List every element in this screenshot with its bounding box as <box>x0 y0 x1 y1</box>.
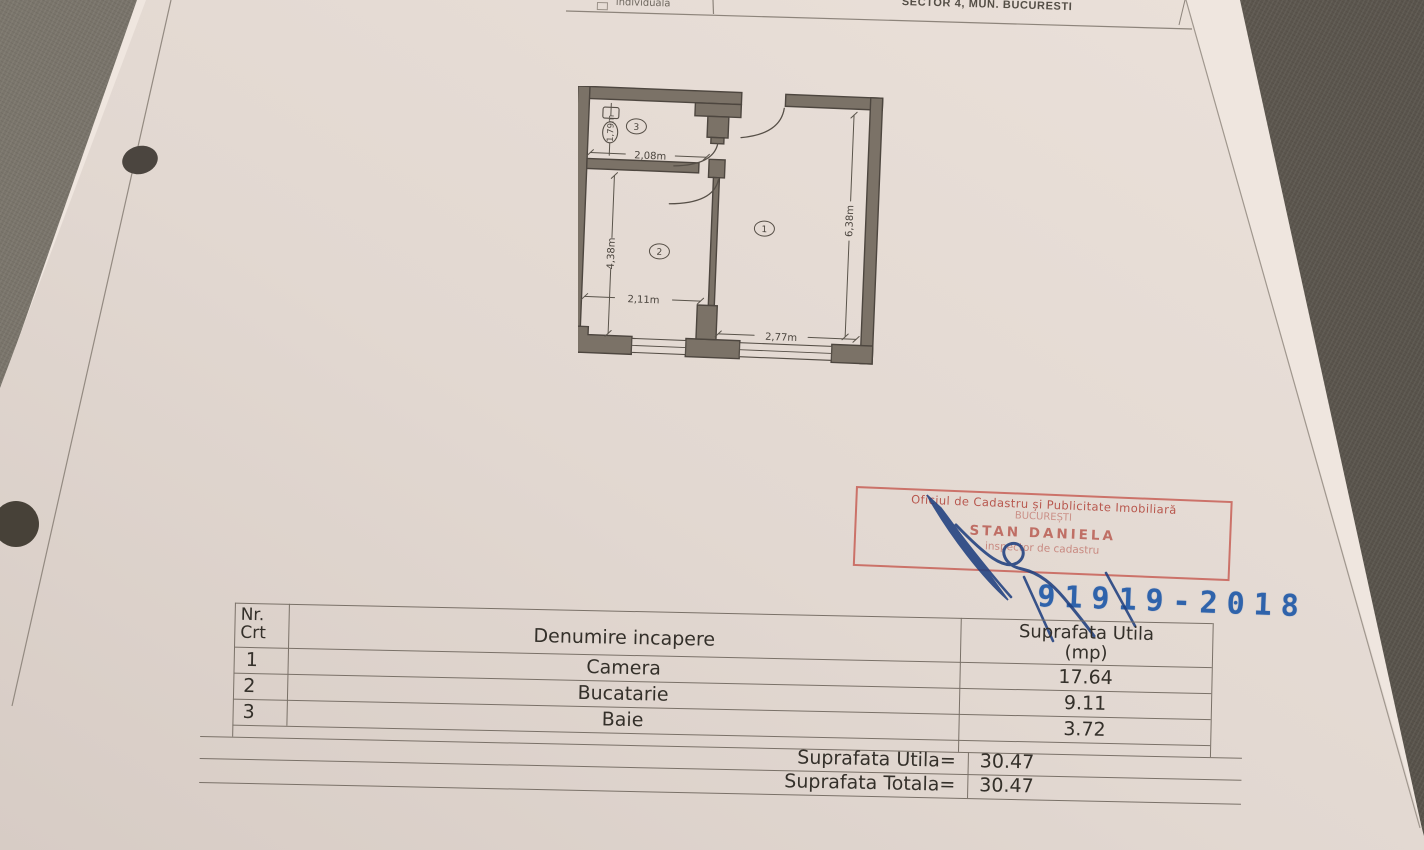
top-strip-divider <box>713 0 714 14</box>
wall-t-top <box>695 103 741 118</box>
wall-right <box>860 98 883 364</box>
wall-bottom-center <box>685 339 740 359</box>
areas-table: Nr. Crt Denumire incapere Suprafata Util… <box>199 600 1251 812</box>
total-totala-value: 30.47 <box>979 773 1034 798</box>
row1-nr: 1 <box>245 647 258 673</box>
dim-kitchen-height: 4,38m <box>606 237 618 269</box>
wall-bottom-left <box>578 326 632 355</box>
wall-top-left <box>578 86 742 105</box>
photographed-cadastral-document: { "top_strip": { "left_label": "individu… <box>0 0 1424 850</box>
row3-area: 3.72 <box>958 714 1210 745</box>
room1-number: 1 <box>761 225 767 235</box>
wall-bottom-right <box>831 344 873 364</box>
dim-kitchen-width: 2,11m <box>627 294 659 306</box>
top-strip-left-label: individuala <box>616 0 671 9</box>
wall-post <box>708 159 725 178</box>
room2-number: 2 <box>656 248 662 258</box>
wall-interior-vertical <box>708 178 719 306</box>
header-nr-line1: Nr. <box>241 606 265 624</box>
wall-t-foot <box>711 137 724 144</box>
wall-interior-bottom-block <box>696 305 717 340</box>
wall-top-right <box>785 94 882 110</box>
room3-number: 3 <box>633 123 639 133</box>
door-arc-kitchen <box>669 178 718 206</box>
checkbox-mark <box>597 2 608 10</box>
floor-plan: 2,08m 1,79m 4,38m 2,11m 2,77m 6,38m 3 2 … <box>578 86 938 406</box>
row2-nr: 2 <box>243 673 256 699</box>
dim-bath-height: 1,79m <box>606 115 617 143</box>
dim-camera-height: 6,38m <box>844 205 856 237</box>
wall-left <box>578 86 590 352</box>
dim-bath-width: 2,08m <box>634 150 666 162</box>
door-arc-entrance <box>741 107 784 140</box>
row3-nr: 3 <box>242 699 255 725</box>
dim-camera-width: 2,77m <box>765 332 797 344</box>
wall-t-stem <box>707 116 729 138</box>
total-utila-value: 30.47 <box>980 749 1035 774</box>
header-nr-line2: Crt <box>240 624 266 643</box>
